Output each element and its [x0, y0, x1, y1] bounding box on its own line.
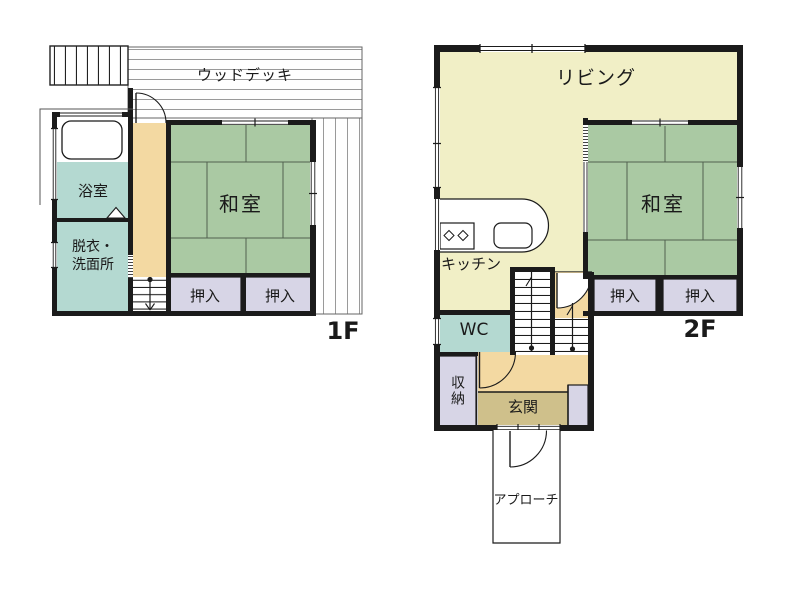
- floor1-closet-right-label: 押入: [252, 285, 308, 306]
- entrance-label: 玄関: [498, 396, 548, 417]
- floor1-exterior-stairs-icon: [50, 46, 128, 85]
- living-label: リビング: [537, 63, 655, 90]
- approach-label: アプローチ: [490, 489, 562, 508]
- sink-icon: [494, 223, 532, 248]
- floor1-staircase-icon: [131, 277, 169, 314]
- floor1-closet-left-label: 押入: [177, 285, 233, 306]
- floor2-closet-left-label: 押入: [597, 285, 653, 306]
- kitchen-label: キッチン: [441, 253, 527, 274]
- floor2-closet-right-label: 押入: [672, 285, 728, 306]
- bathtub-icon: [62, 121, 122, 159]
- washroom-label: 脱衣・ 洗面所: [56, 238, 130, 274]
- floor2-label: 2F: [676, 315, 724, 343]
- kitchen-counter-icon: [437, 199, 548, 252]
- floor1-tatami-label: 和室: [212, 188, 270, 217]
- floor1-label: 1F: [320, 317, 366, 345]
- approach-area: [493, 430, 560, 543]
- floor-plan-canvas: ウッドデッキ 浴室 脱衣・ 洗面所 和室 押入 押入 1F リビング キッチン …: [0, 0, 800, 592]
- floor2-tatami-label: 和室: [634, 188, 692, 217]
- bath-label: 浴室: [70, 180, 116, 201]
- storage-label: 収納: [447, 360, 467, 422]
- accordion-door-icon: [583, 125, 588, 162]
- wc-label: WC: [446, 320, 502, 340]
- deck-label: ウッドデッキ: [182, 64, 308, 85]
